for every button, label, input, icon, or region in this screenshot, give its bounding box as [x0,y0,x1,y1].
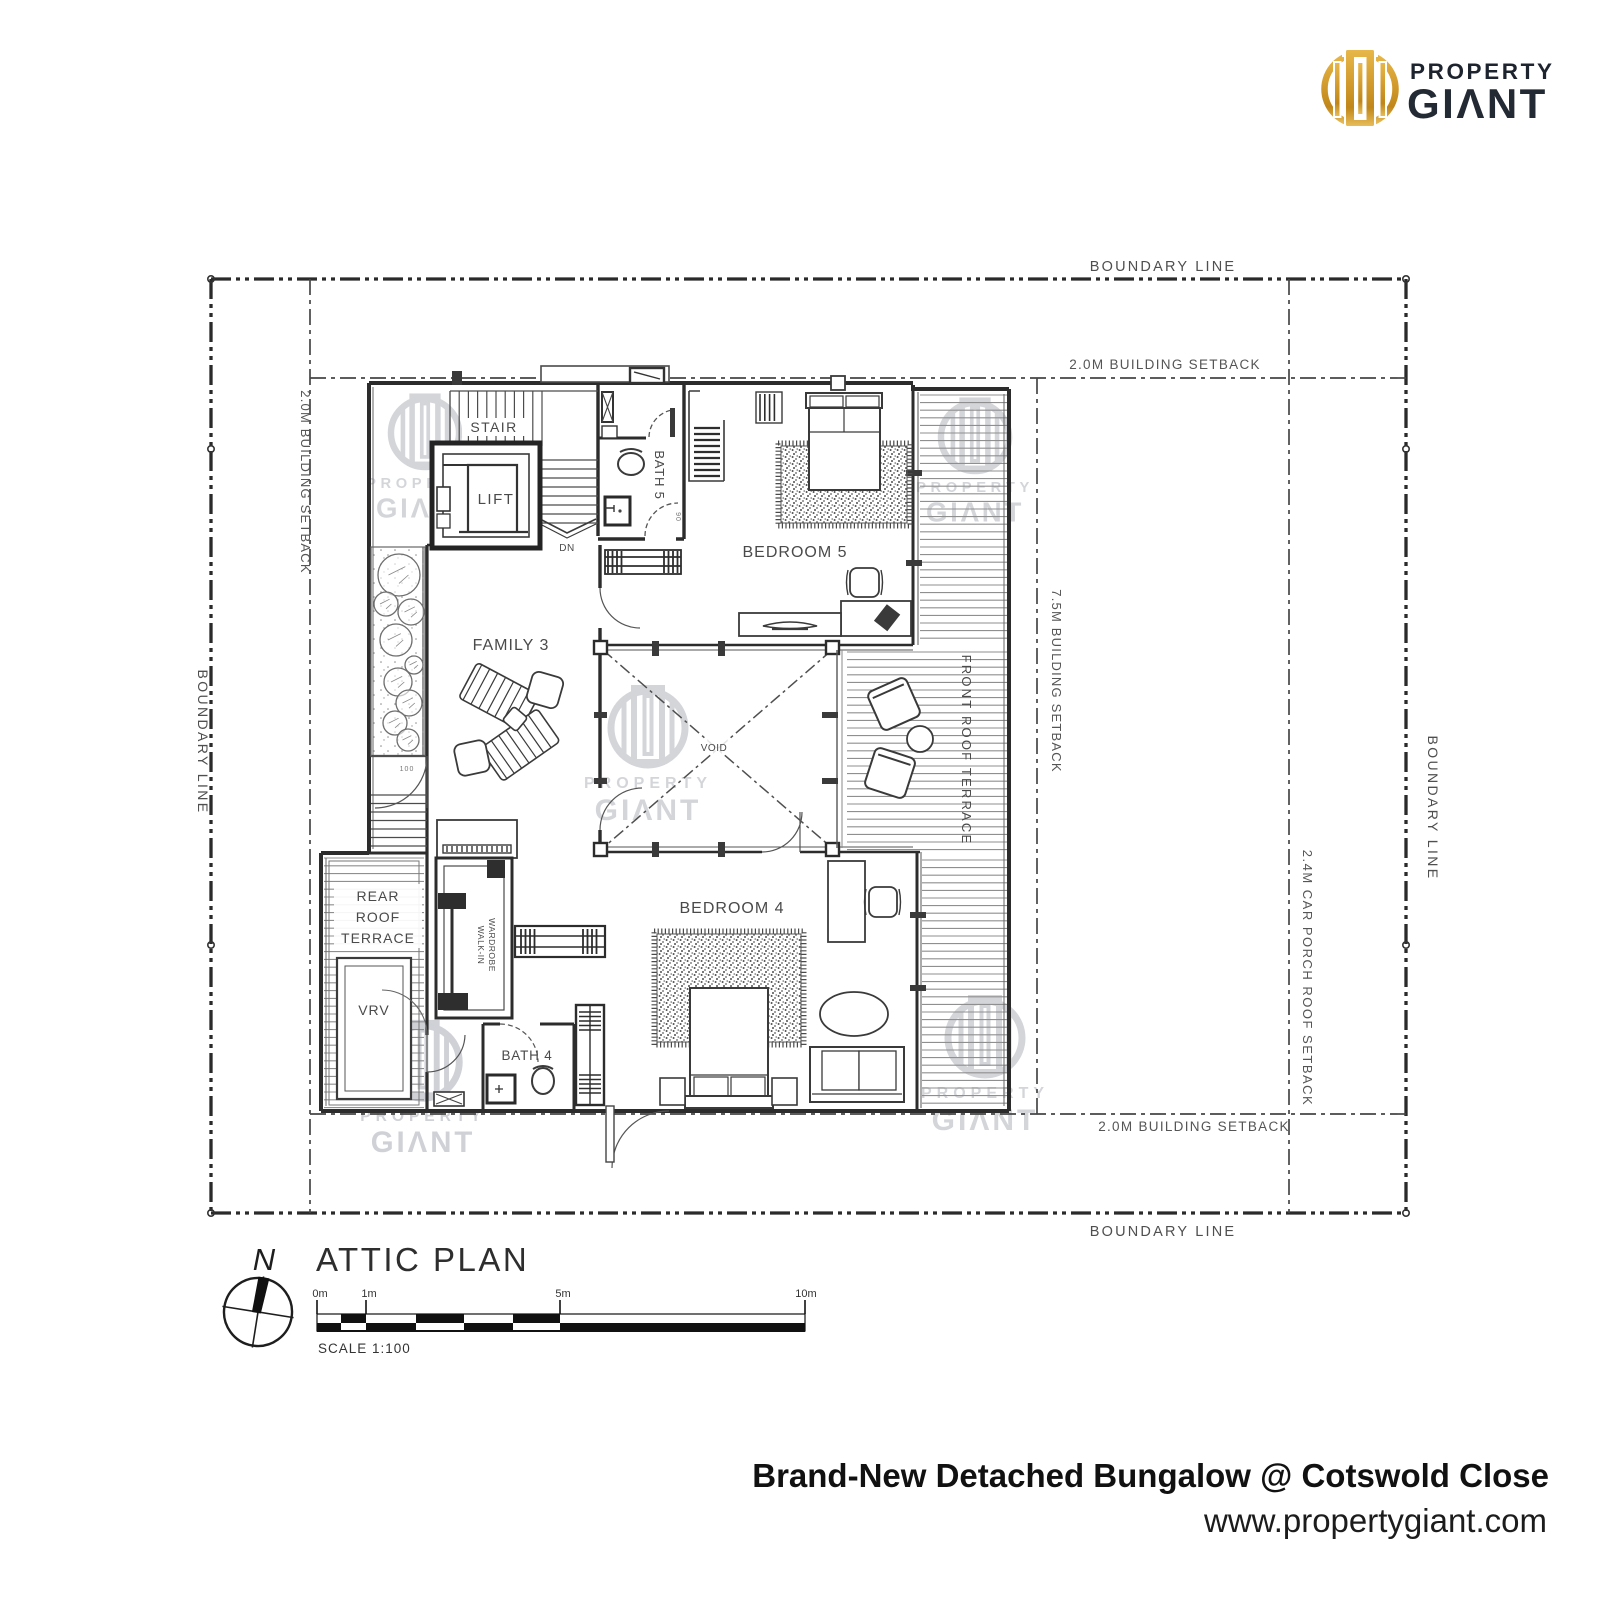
svg-text:100: 100 [400,766,415,773]
svg-text:FAMILY 3: FAMILY 3 [473,637,550,654]
svg-text:BEDROOM 4: BEDROOM 4 [679,900,784,917]
svg-text:BEDROOM 5: BEDROOM 5 [742,544,847,561]
svg-text:90: 90 [674,512,681,522]
svg-text:SCALE 1:100: SCALE 1:100 [318,1341,411,1356]
svg-text:www.propertygiant.com: www.propertygiant.com [1203,1502,1547,1539]
svg-text:2.0M BUILDING SETBACK: 2.0M BUILDING SETBACK [1098,1119,1290,1134]
svg-text:10m: 10m [795,1288,816,1300]
svg-text:FRONT ROOF TERRACE: FRONT ROOF TERRACE [959,655,974,846]
svg-text:2.4M CAR PORCH ROOF SETBACK: 2.4M CAR PORCH ROOF SETBACK [1300,850,1315,1106]
svg-text:LIFT: LIFT [478,491,515,508]
svg-text:GIΛNT: GIΛNT [1407,80,1548,127]
svg-text:2.0M BUILDING SETBACK: 2.0M BUILDING SETBACK [1069,357,1261,372]
svg-text:TERRACE: TERRACE [341,930,415,946]
svg-text:5m: 5m [555,1288,570,1300]
svg-text:WALK-IN: WALK-IN [476,926,486,965]
svg-text:VOID: VOID [701,743,727,754]
svg-text:STAIR: STAIR [470,419,517,435]
svg-text:BATH 5: BATH 5 [652,450,667,499]
svg-text:BATH 4: BATH 4 [501,1048,552,1063]
svg-text:Brand-New Detached Bungalow @: Brand-New Detached Bungalow @ Cotswold C… [752,1457,1549,1494]
svg-text:DN: DN [559,543,574,554]
svg-text:1m: 1m [361,1288,376,1300]
svg-text:BOUNDARY LINE: BOUNDARY LINE [195,669,211,814]
svg-text:VRV: VRV [358,1002,390,1018]
svg-text:ATTIC PLAN: ATTIC PLAN [316,1241,529,1278]
svg-text:REAR: REAR [357,888,400,904]
svg-text:2.0M BUILDING SETBACK: 2.0M BUILDING SETBACK [298,390,313,573]
svg-text:ROOF: ROOF [356,909,400,925]
svg-text:BOUNDARY LINE: BOUNDARY LINE [1090,1224,1237,1240]
svg-text:7.5M BUILDING SETBACK: 7.5M BUILDING SETBACK [1049,589,1064,772]
svg-text:BOUNDARY LINE: BOUNDARY LINE [1090,259,1237,275]
svg-text:0m: 0m [312,1288,327,1300]
svg-text:WARDROBE: WARDROBE [487,918,497,972]
svg-text:N: N [253,1242,276,1277]
svg-text:BOUNDARY LINE: BOUNDARY LINE [1425,735,1441,880]
